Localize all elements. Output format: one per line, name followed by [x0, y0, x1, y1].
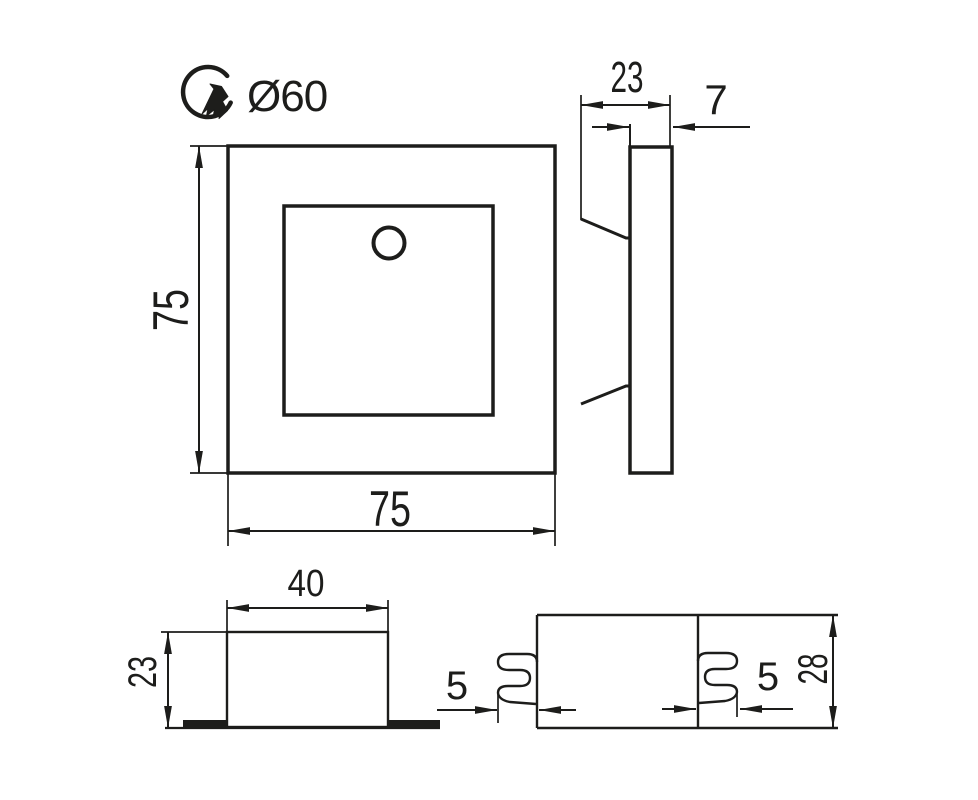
technical-drawing-page: Ø60 75 75 [0, 0, 978, 800]
housing-width-value: 40 [288, 563, 325, 605]
housing-view: 40 23 [121, 563, 440, 729]
side-front-plate [630, 147, 672, 473]
front-frame-flange-right [388, 720, 440, 729]
clip-left-value: 5 [446, 664, 468, 708]
front-width-value: 75 [369, 481, 411, 537]
front-sensor-hole [374, 228, 405, 259]
housing-box [227, 632, 388, 727]
front-view: 75 75 [143, 146, 555, 546]
front-width-dimension: 75 [228, 473, 555, 546]
right-spring-clip [698, 653, 737, 703]
side-upper-spring-clip [581, 219, 631, 238]
drawing-root: Ø60 75 75 [121, 53, 838, 729]
housing-depth-dimension: 23 [121, 632, 227, 728]
dimension-drawing: Ø60 75 75 [0, 0, 978, 800]
clip-height-value: 28 [789, 654, 836, 685]
front-frame-flange-left [183, 720, 227, 729]
side-view: 23 7 [581, 53, 750, 473]
housing-depth-value: 23 [121, 656, 165, 688]
side-depth-value: 23 [611, 53, 644, 102]
side-thickness-value: 7 [704, 76, 727, 123]
housing-width-dimension: 40 [227, 563, 388, 632]
front-inner-diffuser [284, 206, 493, 415]
front-outer-frame [228, 146, 555, 473]
left-spring-clip [498, 654, 537, 704]
clip-right-value: 5 [757, 655, 779, 699]
side-lower-spring-clip [581, 386, 631, 404]
clip-section-view: 5 5 28 [437, 615, 838, 728]
front-height-dimension: 75 [143, 146, 228, 473]
cutout-icon-group: Ø60 [183, 67, 327, 121]
clip-height-dimension: 28 [789, 615, 836, 728]
clip-left-dimension: 5 [437, 664, 576, 723]
side-depth-dimension: 23 [581, 53, 670, 220]
cutout-diameter-label: Ø60 [247, 72, 327, 121]
front-height-value: 75 [143, 289, 199, 331]
hole-cutout-jagged-plug-icon [202, 84, 228, 119]
